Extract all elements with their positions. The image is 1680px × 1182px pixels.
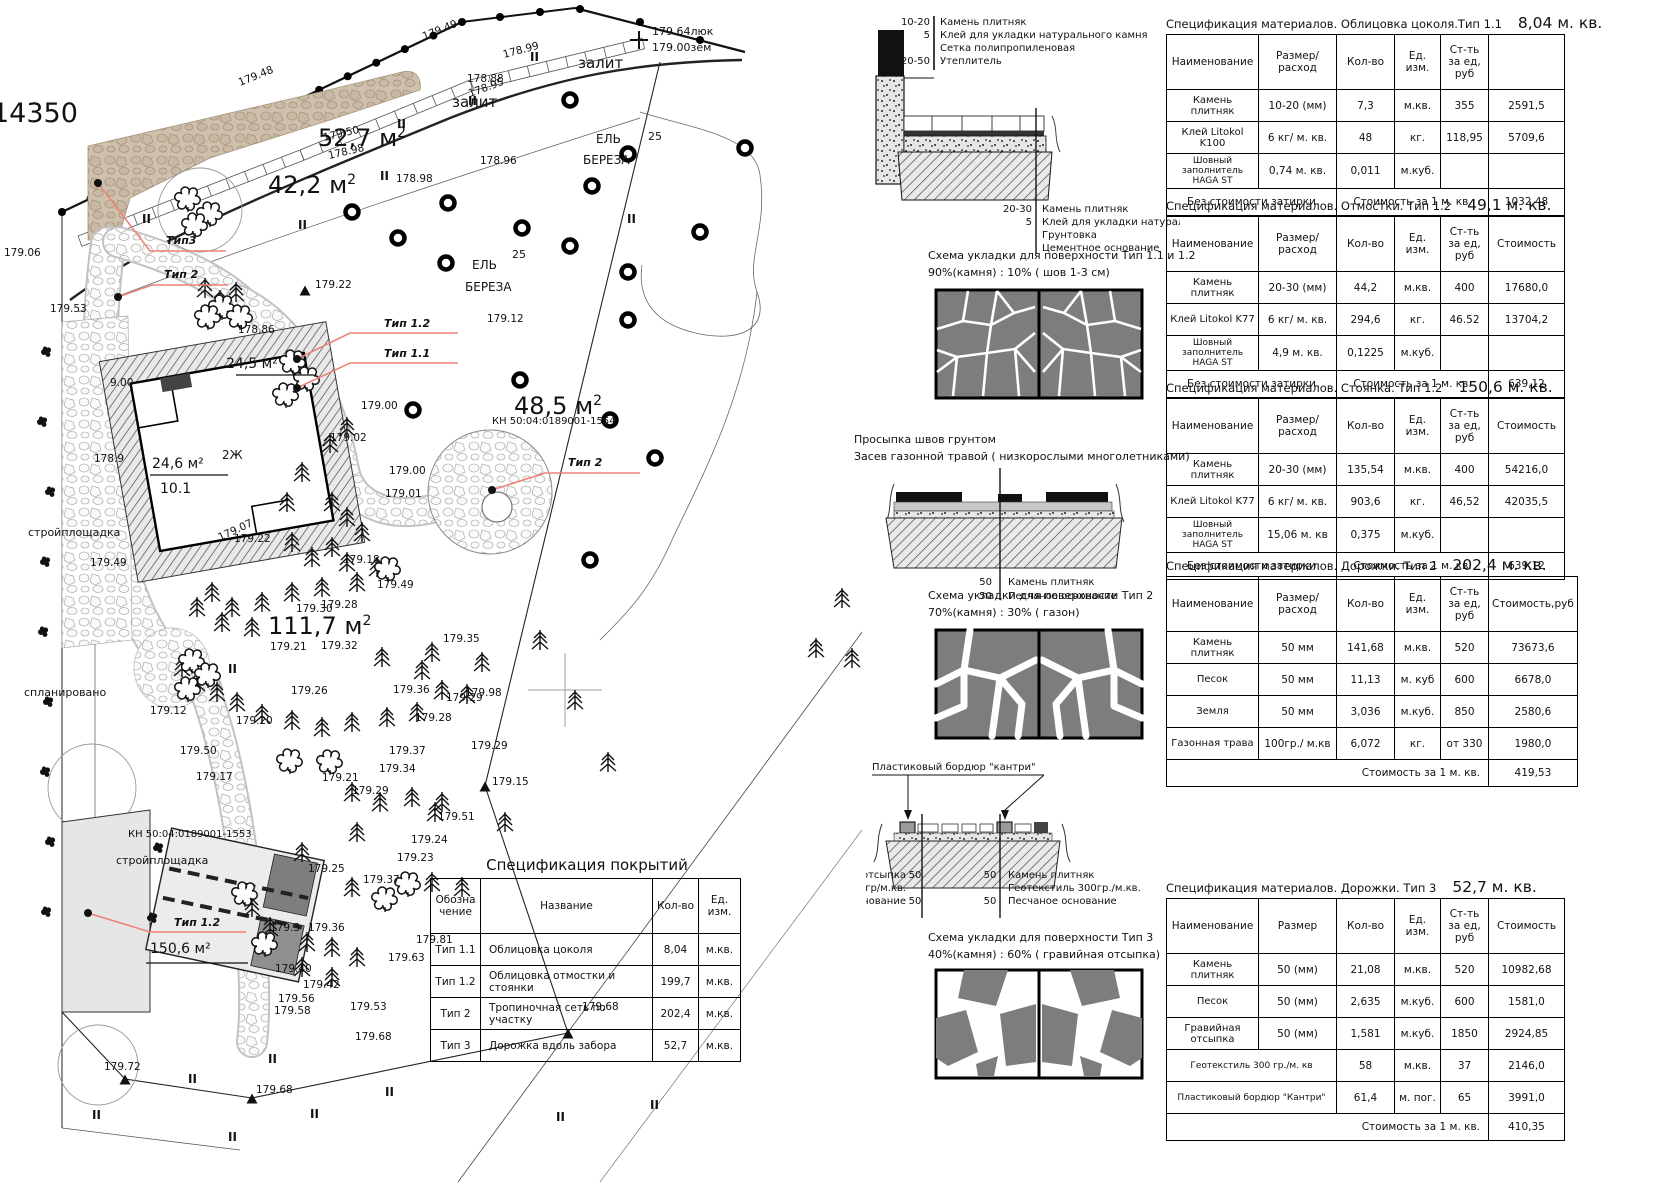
- manhole-cross-icon: [630, 31, 648, 49]
- cell: 141,68: [1337, 632, 1395, 664]
- table-row: Тип 3Дорожка вдоль забора52,7м.кв.: [431, 1030, 741, 1062]
- spec-table-parking: Спецификация материалов. Стоянка. Тип 1.…: [1166, 378, 1565, 580]
- table-row: Шовный заполнитель HAGA ST0,74 м. кв.0,0…: [1167, 154, 1565, 189]
- cell: 600: [1441, 986, 1489, 1018]
- cell: Клей Litokol K77: [1167, 304, 1259, 336]
- cell: Песок: [1167, 664, 1259, 696]
- plan-text: спланировано: [24, 686, 106, 699]
- elevation-label: 179.12: [487, 313, 524, 325]
- cell: 50 (мм): [1259, 954, 1337, 986]
- spec-table: НаименованиеРазмер/расходКол-воЕд. изм.С…: [1166, 398, 1565, 580]
- elevation-label: 179.02: [330, 432, 367, 444]
- cell: м.кв.: [1395, 454, 1441, 486]
- cell: 410,35: [1489, 1114, 1565, 1141]
- layer-label: Геотекстиль 300гр./м.кв.: [1008, 883, 1141, 894]
- scheme-caption-line: 70%(камня) : 30% ( газон): [928, 605, 1153, 622]
- layer-label: Грунтовка: [1042, 230, 1097, 241]
- layer-label: Песчаное основание: [866, 896, 906, 907]
- cell: 100гр./ м.кв: [1259, 728, 1337, 760]
- table-row: Песок50 (мм)2,635м.куб.6001581,0: [1167, 986, 1565, 1018]
- cell: м. пог.: [1395, 1082, 1441, 1114]
- cell: м.куб.: [1395, 696, 1441, 728]
- scheme-caption-line: 40%(камня) : 60% ( гравийная отсыпка): [928, 947, 1160, 964]
- laying-scheme-type2: [934, 628, 1144, 740]
- scheme2-caption: Схема укладки для поверхности Тип 2 70%(…: [928, 588, 1153, 621]
- cell: Стоимость,руб: [1489, 577, 1578, 632]
- elevation-label: 179.50: [180, 745, 217, 757]
- elevation-label: 179.25: [308, 863, 345, 875]
- cell: м.куб.: [1395, 1018, 1441, 1050]
- cell: 20-30 (мм): [1259, 272, 1337, 304]
- tick-mark: II: [650, 1098, 659, 1112]
- plan-text: БЕРЕЗА: [583, 153, 630, 167]
- cell: Размер/расход: [1259, 35, 1337, 90]
- cell: м. куб: [1395, 664, 1441, 696]
- cell: Шовный заполнитель HAGA ST: [1167, 336, 1259, 371]
- elevation-label: 179.68: [256, 1084, 293, 1096]
- plan-text: ЕЛЬ: [596, 132, 621, 146]
- cell: Тропиночная сеть по участку: [481, 998, 653, 1030]
- layer-label: Камень плитняк: [940, 17, 1026, 28]
- table-footer-row: Стоимость за 1 м. кв.419,53: [1167, 760, 1578, 787]
- tick-mark: II: [228, 662, 237, 676]
- cell: Ст-ть за ед, руб: [1441, 35, 1489, 90]
- cell: 1980,0: [1489, 728, 1578, 760]
- cell: 6,072: [1337, 728, 1395, 760]
- cell: 903,6: [1337, 486, 1395, 518]
- cell: от 330: [1441, 728, 1489, 760]
- type-label: Тип 2: [568, 456, 603, 469]
- area-label: 10.1: [160, 481, 191, 497]
- cell: Размер/расход: [1259, 217, 1337, 272]
- cell: 52,7: [653, 1030, 699, 1062]
- table-row: Клей Litokol K1006 кг/ м. кв.48кг.118,95…: [1167, 122, 1565, 154]
- scheme1-caption: Схема укладки для поверхности Тип 1.1 и …: [928, 248, 1195, 281]
- table-row: Камень плитняк20-30 (мм)135,54м.кв.40054…: [1167, 454, 1565, 486]
- cell: Кол-во: [1337, 399, 1395, 454]
- cell: 6 кг/ м. кв.: [1259, 486, 1337, 518]
- cell: Размер: [1259, 899, 1337, 954]
- elevation-label: 179.34: [379, 763, 416, 775]
- cell: 355: [1441, 90, 1489, 122]
- cell: 520: [1441, 632, 1489, 664]
- elevation-label: 179.29: [446, 692, 483, 704]
- area-label: 24,5 м²: [226, 356, 278, 372]
- area-label: 52,7 м2: [318, 124, 406, 152]
- cell: Клей Litokol K100: [1167, 122, 1259, 154]
- detail-caption-line: Просыпка швов грунтом: [854, 432, 1190, 449]
- coverage-table-title: Спецификация покрытий: [430, 856, 744, 874]
- elevation-label: 179.06: [4, 247, 41, 259]
- scheme-caption-line: Схема укладки для поверхности Тип 1.1 и …: [928, 248, 1195, 265]
- spec-table-paths3: Спецификация материалов. Дорожки. Тип 35…: [1166, 878, 1565, 1141]
- tick-mark: II: [298, 218, 307, 232]
- cell: 400: [1441, 272, 1489, 304]
- dim-label: 20-50: [901, 56, 930, 67]
- cell: кг.: [1395, 304, 1441, 336]
- cell: [1489, 35, 1565, 90]
- elevation-label: 179.21: [322, 772, 359, 784]
- spec-table-title: Спецификация материалов. Дорожки. Тип 3: [1166, 881, 1436, 895]
- cell: 2580,6: [1489, 696, 1578, 728]
- elevation-label: 179.01: [385, 488, 422, 500]
- elevation-label: 179.63: [388, 952, 425, 964]
- cell: 21,08: [1337, 954, 1395, 986]
- plan-text: 25: [512, 248, 526, 261]
- elevation-label: 179.49: [421, 18, 460, 43]
- cell: Кол-во: [653, 879, 699, 934]
- cell: Шовный заполнитель HAGA ST: [1167, 154, 1259, 189]
- cell: Шовный заполнитель HAGA ST: [1167, 518, 1259, 553]
- cell: 13704,2: [1489, 304, 1565, 336]
- cell: Размер/расход: [1259, 577, 1337, 632]
- cell: Ед. изм.: [699, 879, 741, 934]
- cell: [1489, 336, 1565, 371]
- cell: Ед. изм.: [1395, 899, 1441, 954]
- cell: 2,635: [1337, 986, 1395, 1018]
- cell: Тип 1.2: [431, 966, 481, 998]
- spec-table-area: 8,04 м. кв.: [1518, 14, 1602, 32]
- elevation-label: 179.58: [274, 1005, 311, 1017]
- elevation-label: 179.53: [350, 1001, 387, 1013]
- tick-mark: II: [627, 212, 636, 226]
- house-label: 2Ж: [222, 448, 243, 462]
- elevation-label: 179.21: [270, 641, 307, 653]
- elevation-label: 179.28: [415, 712, 452, 724]
- area-label: 42,2 м2: [268, 171, 356, 199]
- table-header-row: НаименованиеРазмер/расходКол-воЕд. изм.С…: [1167, 217, 1565, 272]
- plan-text: КН 50:04:0189001-1553: [128, 829, 252, 840]
- cell: [1441, 154, 1489, 189]
- cell: Название: [481, 879, 653, 934]
- spec-table: НаименованиеРазмерКол-воЕд. изм.Ст-ть за…: [1166, 898, 1565, 1141]
- cell: 58: [1337, 1050, 1395, 1082]
- construction-zone: [62, 810, 150, 1012]
- dim-label: 50: [909, 870, 922, 881]
- layer-label: Камень плитняк: [1008, 870, 1094, 881]
- cell: Камень плитняк: [1167, 272, 1259, 304]
- cell: Стоимость: [1489, 399, 1565, 454]
- drawing-sheet: { "colors":{"red_leader":"#ee8276","beig…: [0, 0, 1680, 1182]
- cell: 44,2: [1337, 272, 1395, 304]
- elevation-label: 179.22: [315, 279, 352, 291]
- table-row: Тип 1.1Облицовка цоколя8,04м.кв.: [431, 934, 741, 966]
- plan-text: стройплощадка: [116, 854, 208, 867]
- cell: Наименование: [1167, 577, 1259, 632]
- cell: 3991,0: [1489, 1082, 1565, 1114]
- cell: Ед. изм.: [1395, 217, 1441, 272]
- spec-table-title: Спецификация материалов. Отмостки. Тип 1…: [1166, 199, 1451, 213]
- cell: [1489, 154, 1565, 189]
- elevation-label: 179.15: [492, 776, 529, 788]
- plan-text: 179.64люк: [652, 25, 714, 38]
- elevation-label: 179.00: [361, 400, 398, 412]
- elevation-label: 179.26: [291, 685, 328, 697]
- elevation-label: 179.00: [389, 465, 426, 477]
- table-row: Камень плитняк20-30 (мм)44,2м.кв.4001768…: [1167, 272, 1565, 304]
- table-header-row: НаименованиеРазмер/расходКол-воЕд. изм.С…: [1167, 35, 1565, 90]
- spec-table: НаименованиеРазмер/расходКол-воЕд. изм.С…: [1166, 216, 1565, 398]
- cell: м.кв.: [1395, 272, 1441, 304]
- cell: [1489, 518, 1565, 553]
- scheme-caption-line: Схема укладки для поверхности Тип 2: [928, 588, 1153, 605]
- cell: Газонная трава: [1167, 728, 1259, 760]
- dim-label: 50: [909, 896, 922, 907]
- table-row: Камень плитняк50 мм141,68м.кв.52073673,6: [1167, 632, 1578, 664]
- cell: 118,95: [1441, 122, 1489, 154]
- cell: Ед. изм.: [1395, 399, 1441, 454]
- elevation-label: 179.53: [50, 303, 87, 315]
- cell: 65: [1441, 1082, 1489, 1114]
- spec-table-plinth: Спецификация материалов. Облицовка цокол…: [1166, 14, 1602, 216]
- elevation-label: 179.23: [397, 852, 434, 864]
- elevation-label: 179.68: [355, 1031, 392, 1043]
- cell: Наименование: [1167, 399, 1259, 454]
- coverage-spec-table: Спецификация покрытий Обозна чениеНазван…: [430, 856, 744, 1062]
- elevation-label: 179.36: [308, 922, 345, 934]
- table-header-row: НаименованиеРазмер/расходКол-воЕд. изм.С…: [1167, 399, 1565, 454]
- layer-label: Утеплитель: [940, 56, 1002, 67]
- scheme-caption-line: Схема укладки для поверхности Тип 3: [928, 930, 1160, 947]
- dim-label: 50: [979, 577, 992, 588]
- cell: 46.52: [1441, 304, 1489, 336]
- cell: 50 (мм): [1259, 1018, 1337, 1050]
- cell: 6 кг/ м. кв.: [1259, 304, 1337, 336]
- cell: Камень плитняк: [1167, 454, 1259, 486]
- cell: 850: [1441, 696, 1489, 728]
- plan-text: залит: [578, 54, 624, 72]
- type3-gravel-path: [88, 71, 420, 240]
- table-row: Камень плитняк10-20 (мм)7,3м.кв.3552591,…: [1167, 90, 1565, 122]
- cell: м.кв.: [699, 998, 741, 1030]
- area-label: 150,6 м²: [150, 941, 211, 957]
- elevation-label: 178.86: [238, 324, 275, 336]
- elevation-label: 179.72: [104, 1061, 141, 1073]
- cell: Ст-ть за ед, руб: [1441, 399, 1489, 454]
- cell: 6 кг/ м. кв.: [1259, 122, 1337, 154]
- type-label: Тип 2: [164, 268, 199, 281]
- spec-table-title: Спецификация материалов. Облицовка цокол…: [1166, 17, 1502, 31]
- dim-label: 5: [1026, 217, 1032, 228]
- elevation-label: 179.42: [303, 979, 340, 991]
- elevation-label: 179.3: [270, 922, 300, 934]
- elevation-label: 179.56: [278, 993, 315, 1005]
- cell: 10-20 (мм): [1259, 90, 1337, 122]
- tick-mark: II: [385, 1085, 394, 1099]
- cell: 11,13: [1337, 664, 1395, 696]
- table-row: Клей Litokol K776 кг/ м. кв.903,6кг.46,5…: [1167, 486, 1565, 518]
- cell: Кол-во: [1337, 577, 1395, 632]
- cell: Ед. изм.: [1395, 35, 1441, 90]
- elevation-label: 178.9: [94, 453, 124, 465]
- tick-mark: II: [142, 212, 151, 226]
- cell: Стоимость: [1489, 899, 1565, 954]
- tick-mark: II: [380, 169, 389, 183]
- detail-caption-line: Засев газонной травой ( низкорослыми мно…: [854, 449, 1190, 466]
- cell: м.кв.: [1395, 90, 1441, 122]
- cell: 1581,0: [1489, 986, 1565, 1018]
- tick-mark: II: [188, 1072, 197, 1086]
- scheme-caption-line: 90%(камня) : 10% ( шов 1-3 см): [928, 265, 1195, 282]
- detail2-caption: Просыпка швов грунтом Засев газонной тра…: [854, 432, 1190, 465]
- elevation-label: 179.29: [352, 785, 389, 797]
- cell: Облицовка отмостки и стоянки: [481, 966, 653, 998]
- elevation-label: 179.12: [150, 705, 187, 717]
- dim-label: 50: [984, 870, 997, 881]
- table-row: Тип 1.2Облицовка отмостки и стоянки199,7…: [431, 966, 741, 998]
- cell: 73673,6: [1489, 632, 1578, 664]
- table-row: Клей Litokol K776 кг/ м. кв.294,6кг.46.5…: [1167, 304, 1565, 336]
- elevation-label: 179.29: [471, 740, 508, 752]
- plan-text: ЕЛЬ: [472, 258, 497, 272]
- cell: Камень плитняк: [1167, 90, 1259, 122]
- cell: Наименование: [1167, 217, 1259, 272]
- plan-text: БЕРЕЗА: [465, 280, 512, 294]
- type-label: Тип3: [166, 234, 197, 247]
- cell: 2591,5: [1489, 90, 1565, 122]
- cell: Кол-во: [1337, 899, 1395, 954]
- table-footer-row: Стоимость за 1 м. кв.410,35: [1167, 1114, 1565, 1141]
- cell: Пластиковый бордюр "Кантри": [1167, 1082, 1337, 1114]
- cell: Размер/расход: [1259, 399, 1337, 454]
- table-row: Пластиковый бордюр "Кантри"61,4м. пог.65…: [1167, 1082, 1565, 1114]
- cell: Наименование: [1167, 899, 1259, 954]
- cell: 7,3: [1337, 90, 1395, 122]
- cell: 48: [1337, 122, 1395, 154]
- dim-label: 5: [924, 30, 930, 41]
- spec-table-paths2: Спецификация материалов. Дорожки. Тип 22…: [1166, 556, 1578, 787]
- laying-scheme-type3: [934, 968, 1144, 1080]
- cell: Кол-во: [1337, 217, 1395, 272]
- cell: Тип 2: [431, 998, 481, 1030]
- tick-mark: II: [268, 1052, 277, 1066]
- cell: 50 мм: [1259, 632, 1337, 664]
- table-row: Камень плитняк50 (мм)21,08м.кв.52010982,…: [1167, 954, 1565, 986]
- cell: 520: [1441, 954, 1489, 986]
- cell: Ст-ть за ед, руб: [1441, 217, 1489, 272]
- type-label: Тип 1.2: [384, 317, 430, 330]
- cell: 4,9 м. кв.: [1259, 336, 1337, 371]
- cell: 3,036: [1337, 696, 1395, 728]
- outbuilding: [146, 828, 324, 982]
- tick-mark: II: [556, 1110, 565, 1124]
- cell: 50 (мм): [1259, 986, 1337, 1018]
- elevation-label: 179.24: [411, 834, 448, 846]
- cell: 61,4: [1337, 1082, 1395, 1114]
- spec-table-area: 150,6 м. кв.: [1458, 378, 1552, 396]
- elevation-label: 179.18: [343, 554, 380, 566]
- cell: Тип 1.1: [431, 934, 481, 966]
- spec-table: НаименованиеРазмер/расходКол-воЕд. изм.С…: [1166, 34, 1565, 216]
- cell: Ст-ть за ед, руб: [1441, 577, 1489, 632]
- table-row: Гравийная отсыпка50 (мм)1,581м.куб.18502…: [1167, 1018, 1565, 1050]
- plan-text: 179.00зем: [652, 41, 711, 54]
- elevation-label: 179.37: [363, 874, 400, 886]
- cell: 600: [1441, 664, 1489, 696]
- cell: 15,06 м. кв: [1259, 518, 1337, 553]
- table-row: Земля50 мм3,036м.куб.8502580,6: [1167, 696, 1578, 728]
- cell: м.куб.: [1395, 336, 1441, 371]
- cell: 1850: [1441, 1018, 1489, 1050]
- layer-label: Песчаное основание: [1008, 896, 1117, 907]
- elevation-label: 178.88: [467, 73, 504, 85]
- area-label: 24,6 м²: [152, 456, 204, 472]
- sheet-corner-label: 14350: [0, 98, 78, 129]
- border-label: Пластиковый бордюр "кантри": [872, 762, 1036, 773]
- layer-label: Камень плитняк: [1042, 204, 1128, 215]
- cell: м.кв.: [1395, 632, 1441, 664]
- cell: Обозна чение: [431, 879, 481, 934]
- cell: Стоимость за 1 м. кв.: [1167, 760, 1489, 787]
- table-header-row: НаименованиеРазмер/расходКол-воЕд. изм.С…: [1167, 577, 1578, 632]
- cell: 6678,0: [1489, 664, 1578, 696]
- cell: 0,1225: [1337, 336, 1395, 371]
- cell: 135,54: [1337, 454, 1395, 486]
- table-row: Песок50 мм11,13м. куб6006678,0: [1167, 664, 1578, 696]
- cell: 50 мм: [1259, 696, 1337, 728]
- elevation-label: 179.20: [236, 715, 273, 727]
- cell: 0,375: [1337, 518, 1395, 553]
- cell: кг.: [1395, 122, 1441, 154]
- elevation-label: 179.17: [196, 771, 233, 783]
- spec-table-blindarea: Спецификация материалов. Отмостки. Тип 1…: [1166, 196, 1565, 398]
- cell: кг.: [1395, 486, 1441, 518]
- elevation-label: 179.32: [321, 640, 358, 652]
- spec-table-area: 202,4 м. кв.: [1452, 556, 1546, 574]
- cell: Стоимость: [1489, 217, 1565, 272]
- cell: Камень плитняк: [1167, 954, 1259, 986]
- cell: Тип 3: [431, 1030, 481, 1062]
- elevation-label: 178.98: [396, 173, 433, 185]
- detail-plinth-section: 10-20 5 20-50 Камень плитняк Клей для ук…: [868, 8, 1180, 264]
- cell: Кол-во: [1337, 35, 1395, 90]
- elevation-label: 179.49: [90, 557, 127, 569]
- dim-label: 10-20: [901, 17, 930, 28]
- tick-mark: II: [228, 1130, 237, 1144]
- cell: 46,52: [1441, 486, 1489, 518]
- cell: м.кв.: [699, 966, 741, 998]
- cell: 0,74 м. кв.: [1259, 154, 1337, 189]
- cell: Клей Litokol K77: [1167, 486, 1259, 518]
- table-row: Шовный заполнитель HAGA ST15,06 м. кв0,3…: [1167, 518, 1565, 553]
- coverage-table: Обозна чениеНазваниеКол-воЕд. изм.Тип 1.…: [430, 878, 741, 1062]
- elevation-label: 9.00: [110, 377, 133, 389]
- cell: 419,53: [1489, 760, 1578, 787]
- spec-table-title: Спецификация материалов. Стоянка. Тип 1.…: [1166, 381, 1442, 395]
- cell: [1441, 518, 1489, 553]
- plan-text: стройплощадка: [28, 526, 120, 539]
- cell: Ед. изм.: [1395, 577, 1441, 632]
- layer-label: Гравийная отсыпка: [866, 870, 906, 881]
- cell: 42035,5: [1489, 486, 1565, 518]
- cell: Геотекстиль 300 гр./м. кв: [1167, 1050, 1337, 1082]
- table-row: Геотекстиль 300 гр./м. кв58м.кв.372146,0: [1167, 1050, 1565, 1082]
- cell: 0,011: [1337, 154, 1395, 189]
- tick-mark: II: [92, 1108, 101, 1122]
- cell: 5709,6: [1489, 122, 1565, 154]
- cell: 2924,85: [1489, 1018, 1565, 1050]
- cell: Дорожка вдоль забора: [481, 1030, 653, 1062]
- cell: 54216,0: [1489, 454, 1565, 486]
- cell: Ст-ть за ед, руб: [1441, 899, 1489, 954]
- scheme3-caption: Схема укладки для поверхности Тип 3 40%(…: [928, 930, 1160, 963]
- cell: м.кв.: [1395, 954, 1441, 986]
- detail-path-type2-section: 50 50 Камень плитняк Песчаное основание: [878, 466, 1178, 606]
- cell: [1441, 336, 1489, 371]
- elevation-label: 179.49: [377, 579, 414, 591]
- crosshair: [528, 653, 602, 727]
- area-label: 111,7 м2: [268, 612, 371, 640]
